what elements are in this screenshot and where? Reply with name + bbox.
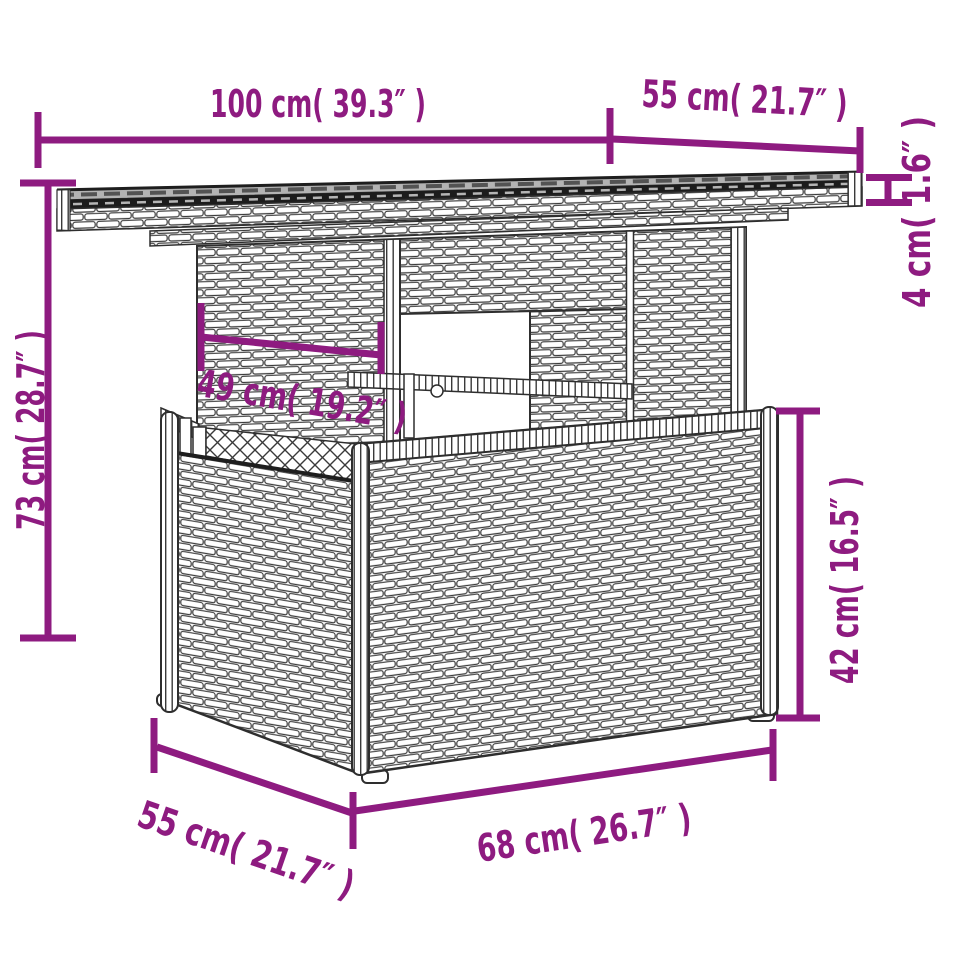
dimension-tabletop-thickness: 4 cm( 1.6″ ) bbox=[866, 116, 939, 308]
dim-label-overall-height: 73 cm( 28.7″ ) bbox=[9, 330, 53, 530]
dim-label-base-width: 68 cm( 26.7″ ) bbox=[474, 795, 694, 870]
base-front-corner-edge bbox=[352, 443, 369, 775]
base-left-face bbox=[170, 452, 360, 774]
dimension-tabletop-depth: 55 cm( 21.7″ ) bbox=[612, 72, 860, 173]
dimension-tabletop-width: 100 cm( 39.3″ ) bbox=[38, 82, 610, 168]
dim-label-base-height: 42 cm( 16.5″ ) bbox=[823, 476, 867, 684]
dim-line bbox=[612, 139, 860, 151]
dim-label-tabletop-width: 100 cm( 39.3″ ) bbox=[210, 82, 426, 126]
tabletop-left-cap bbox=[57, 190, 70, 231]
dim-label-tabletop-depth: 55 cm( 21.7″ ) bbox=[641, 72, 849, 127]
base-left-rounded-edge bbox=[161, 412, 178, 712]
dim-label-tabletop-thickness: 4 cm( 1.6″ ) bbox=[895, 116, 939, 308]
pedestal-corner-post bbox=[627, 231, 634, 448]
dimension-base-height: 42 cm( 16.5″ ) bbox=[776, 411, 867, 718]
dimension-overall-height: 73 cm( 28.7″ ) bbox=[9, 183, 76, 638]
pedestal-back-beam bbox=[400, 231, 630, 314]
tabletop-right-cap bbox=[848, 172, 862, 206]
interior-post-1 bbox=[180, 418, 191, 455]
base-box bbox=[157, 407, 778, 783]
interior-rim-knob bbox=[431, 385, 443, 397]
pedestal-right-panel-rounded-edge bbox=[731, 227, 746, 436]
diagram-canvas: 100 cm( 39.3″ ) 55 cm( 21.7″ ) 4 cm( 1.6… bbox=[0, 0, 955, 955]
base-right-rounded-edge bbox=[761, 407, 778, 715]
product-dimension-diagram: 100 cm( 39.3″ ) 55 cm( 21.7″ ) 4 cm( 1.6… bbox=[0, 0, 955, 955]
base-right-face bbox=[358, 409, 777, 774]
dim-label-base-depth: 55 cm( 21.7″ ) bbox=[132, 792, 360, 907]
